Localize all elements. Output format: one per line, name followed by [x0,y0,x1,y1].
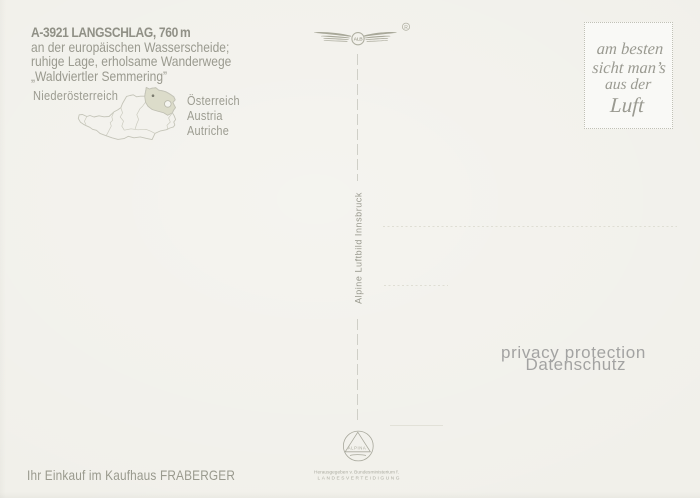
svg-text:R: R [404,25,408,31]
svg-text:Herausgegeben v. Bundesministe: Herausgegeben v. Bundesministerium f. [314,470,399,476]
svg-text:LANDESVERTEIDIGUNG: LANDESVERTEIDIGUNG [318,476,402,482]
svg-text:ALB: ALB [354,37,364,43]
svg-text:ALPINA: ALPINA [348,445,367,450]
